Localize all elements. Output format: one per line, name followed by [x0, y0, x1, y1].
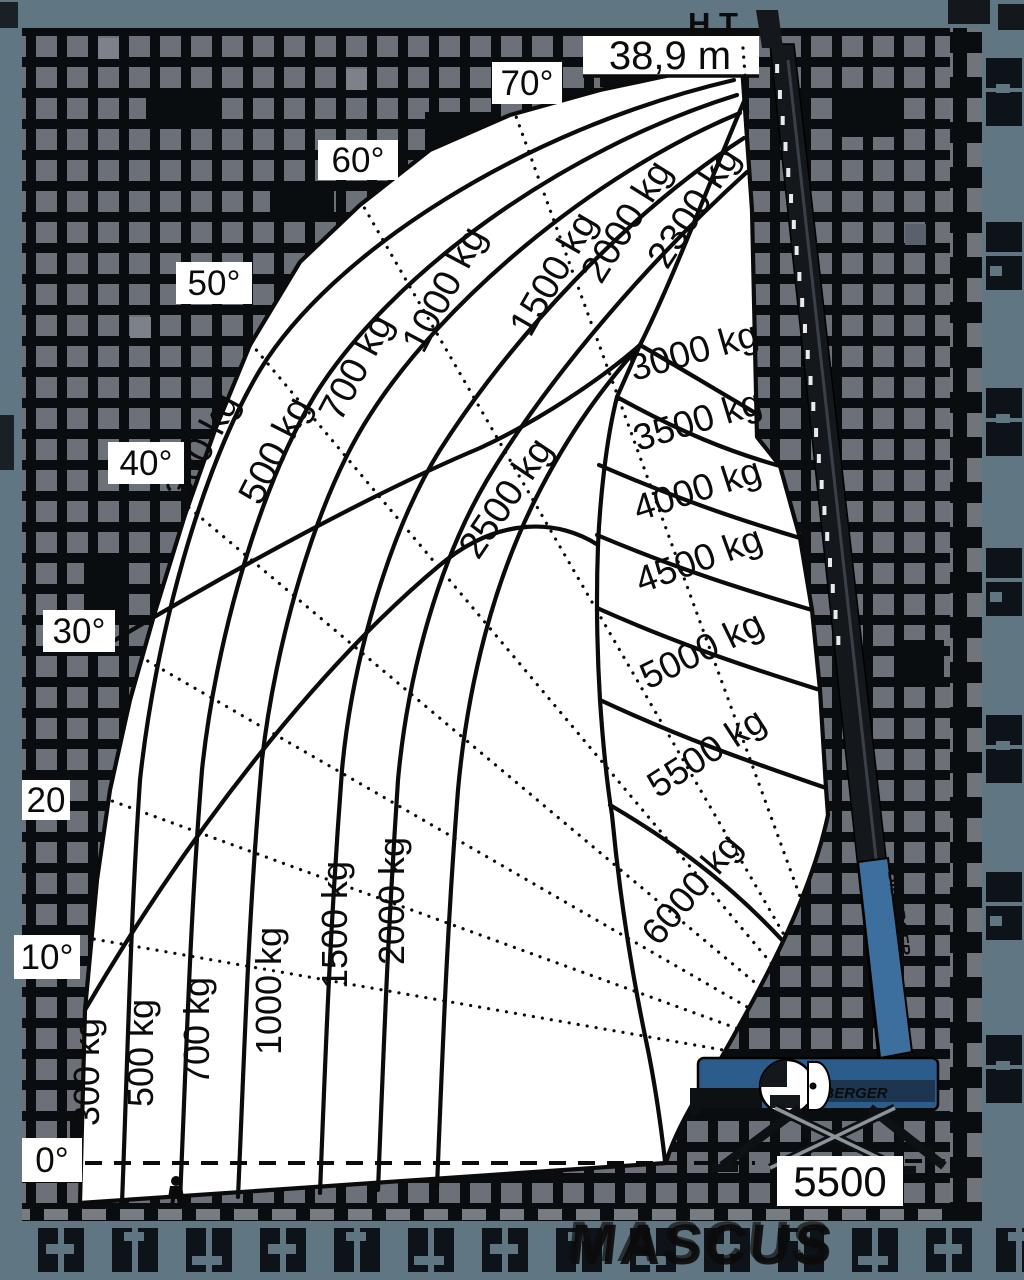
mascus-watermark: MASCUS MASCUS: [564, 1210, 838, 1277]
watermark-text: MASCUS: [567, 1213, 839, 1277]
base-width-callout: 5500: [777, 1156, 903, 1206]
load-label: 700 kg: [176, 977, 217, 1085]
angle-label-30: 30°: [53, 612, 106, 651]
angle-label-20: 20: [27, 781, 66, 820]
top-right-glyph: [998, 4, 1024, 30]
top-right-glyph: [948, 0, 990, 24]
left-edge-glyph: [0, 415, 14, 470]
load-label: 2000 kg: [371, 837, 412, 965]
load-chart-figure: H,T: [0, 0, 1024, 1280]
load-label: 1000 kg: [248, 927, 289, 1055]
load-label: 1500 kg: [314, 861, 355, 989]
right-tick-band: [950, 28, 982, 1221]
angle-label-0: 0°: [35, 1141, 68, 1180]
top-left-glyph: [0, 2, 18, 28]
load-label: 300 kg: [66, 1018, 107, 1126]
angle-label-50: 50°: [188, 264, 241, 303]
load-label: 500 kg: [120, 999, 161, 1107]
max-height-value: 38,9 m: [609, 34, 731, 78]
angle-label-60: 60°: [332, 141, 385, 180]
base-width-value: 5500: [793, 1158, 886, 1205]
angle-label-70: 70°: [501, 64, 554, 103]
angle-label-10: 10°: [21, 938, 74, 977]
angle-label-40: 40°: [120, 444, 173, 483]
